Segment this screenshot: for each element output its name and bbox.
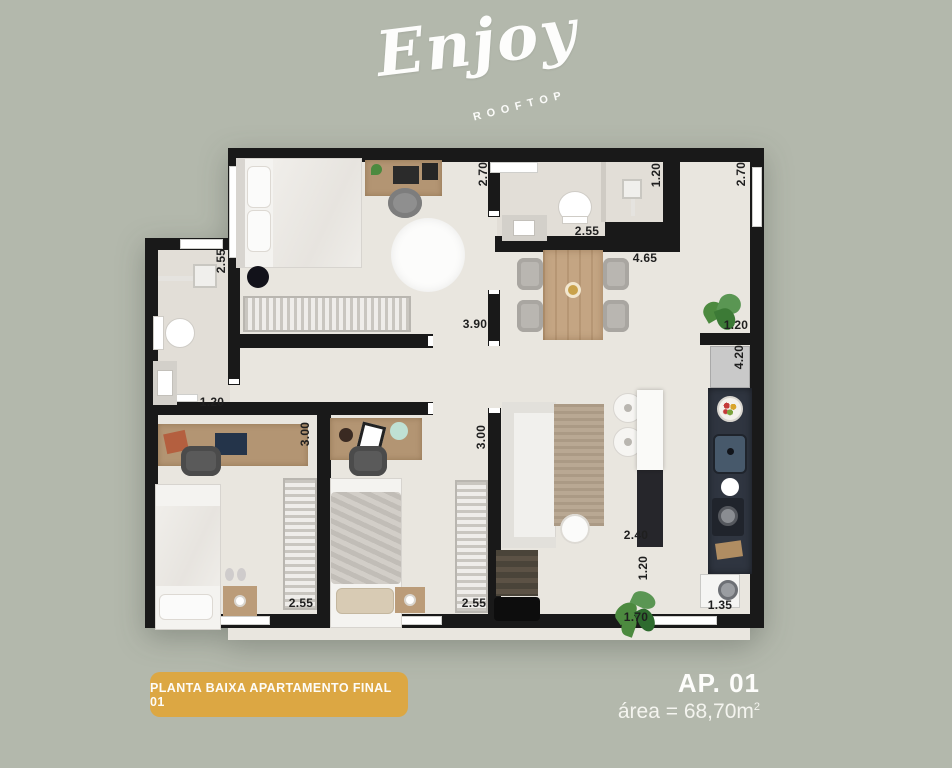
dimension-label: 1.20 <box>649 163 663 188</box>
dimension-label: 2.55 <box>289 596 314 610</box>
dimension-layer: 2.701.202.702.554.652.553.901.204.201.20… <box>145 146 767 664</box>
dimension-label: 4.20 <box>732 345 746 370</box>
page: { "logo": { "brand": "Enjoy", "tagline":… <box>0 0 952 768</box>
unit-info: AP. 01 área = 68,70m2 <box>618 668 760 724</box>
dimension-label: 2.40 <box>624 528 649 542</box>
brand-tagline: ROOFTOP <box>472 89 568 124</box>
brand-logo: Enjoy <box>348 0 605 94</box>
unit-label: AP. 01 <box>618 668 760 699</box>
plan-title-badge: PLANTA BAIXA APARTAMENTO FINAL 01 <box>150 672 408 717</box>
unit-area: área = 68,70m2 <box>618 700 760 724</box>
dimension-label: 1.20 <box>636 556 650 581</box>
dimension-label: 1.35 <box>708 598 733 612</box>
dimension-label: 3.90 <box>463 317 488 331</box>
dimension-label: 1.20 <box>200 395 225 409</box>
dimension-label: 2.55 <box>462 596 487 610</box>
plan-title-label: PLANTA BAIXA APARTAMENTO FINAL 01 <box>150 681 408 709</box>
dimension-label: 1.70 <box>624 610 649 624</box>
dimension-label: 2.55 <box>575 224 600 238</box>
dimension-label: 2.55 <box>214 249 228 274</box>
dimension-label: 2.70 <box>734 162 748 187</box>
floor-plan: 2.701.202.702.554.652.553.901.204.201.20… <box>145 146 767 664</box>
dimension-label: 3.00 <box>474 425 488 450</box>
dimension-label: 2.70 <box>476 162 490 187</box>
area-exponent: 2 <box>754 701 760 713</box>
dimension-label: 3.00 <box>298 422 312 447</box>
dimension-label: 1.20 <box>724 318 749 332</box>
dimension-label: 4.65 <box>633 251 658 265</box>
